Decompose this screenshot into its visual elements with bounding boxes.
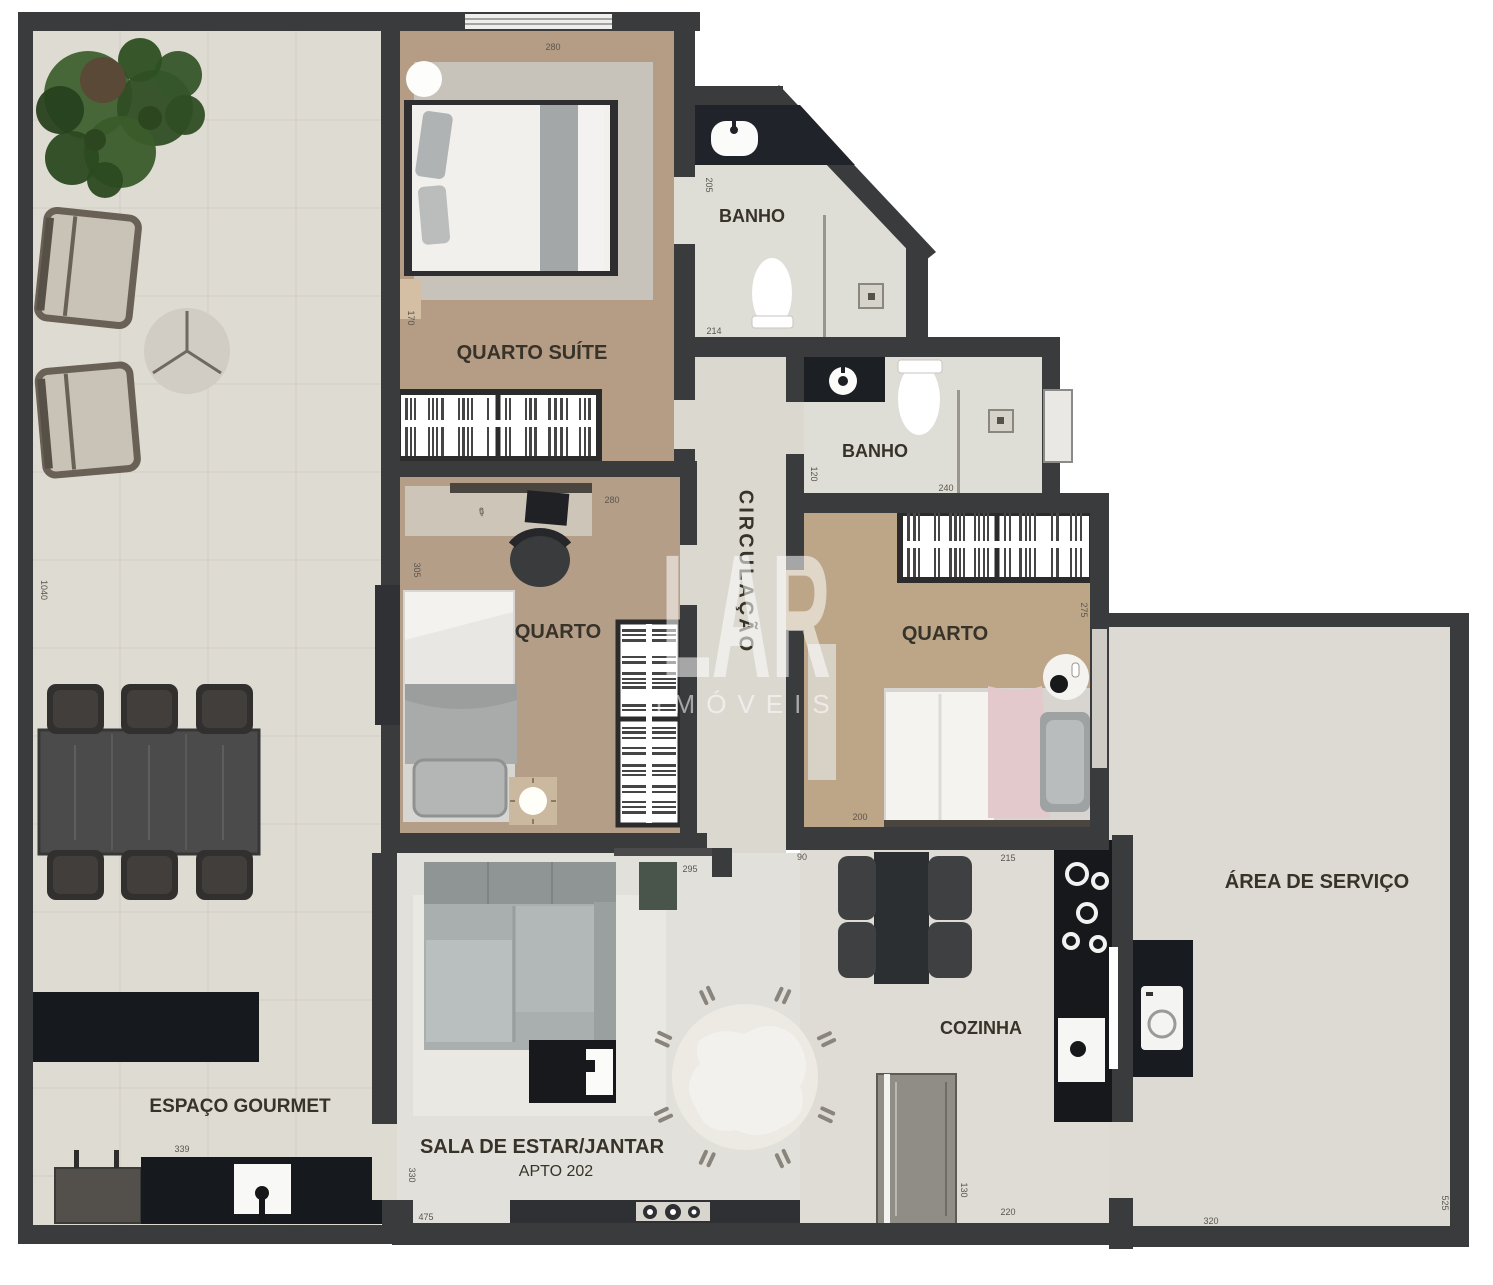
svg-text:130: 130 bbox=[959, 1182, 969, 1197]
svg-text:280: 280 bbox=[545, 42, 560, 52]
svg-text:APTO 202: APTO 202 bbox=[519, 1163, 594, 1180]
svg-text:90: 90 bbox=[797, 852, 807, 862]
svg-text:ESPAÇO GOURMET: ESPAÇO GOURMET bbox=[149, 1096, 331, 1117]
svg-text:200: 200 bbox=[852, 812, 867, 822]
svg-text:LAR: LAR bbox=[661, 520, 831, 716]
svg-text:305: 305 bbox=[412, 562, 422, 577]
svg-text:1040: 1040 bbox=[39, 580, 49, 600]
svg-text:QUARTO: QUARTO bbox=[902, 623, 988, 645]
svg-text:SALA DE ESTAR/JANTAR: SALA DE ESTAR/JANTAR bbox=[420, 1136, 665, 1158]
svg-text:339: 339 bbox=[174, 1144, 189, 1154]
svg-text:QUARTO: QUARTO bbox=[515, 621, 601, 643]
svg-text:BANHO: BANHO bbox=[842, 441, 908, 461]
svg-text:240: 240 bbox=[938, 483, 953, 493]
svg-text:525: 525 bbox=[1440, 1195, 1450, 1210]
svg-text:295: 295 bbox=[682, 864, 697, 874]
svg-text:IMÓVEIS: IMÓVEIS bbox=[655, 689, 840, 719]
svg-text:214: 214 bbox=[706, 326, 721, 336]
svg-text:320: 320 bbox=[1203, 1216, 1218, 1226]
svg-text:280: 280 bbox=[604, 495, 619, 505]
svg-text:120: 120 bbox=[809, 466, 819, 481]
svg-text:275: 275 bbox=[1079, 602, 1089, 617]
svg-text:BANHO: BANHO bbox=[719, 206, 785, 226]
svg-text:COZINHA: COZINHA bbox=[940, 1018, 1022, 1038]
svg-text:215: 215 bbox=[1000, 853, 1015, 863]
svg-text:475: 475 bbox=[418, 1212, 433, 1222]
svg-text:205: 205 bbox=[704, 177, 714, 192]
svg-text:330: 330 bbox=[407, 1167, 417, 1182]
svg-text:QUARTO SUÍTE: QUARTO SUÍTE bbox=[457, 341, 608, 364]
svg-text:220: 220 bbox=[1000, 1207, 1015, 1217]
svg-text:ÁREA DE SERVIÇO: ÁREA DE SERVIÇO bbox=[1225, 870, 1409, 893]
svg-text:170: 170 bbox=[406, 310, 416, 325]
